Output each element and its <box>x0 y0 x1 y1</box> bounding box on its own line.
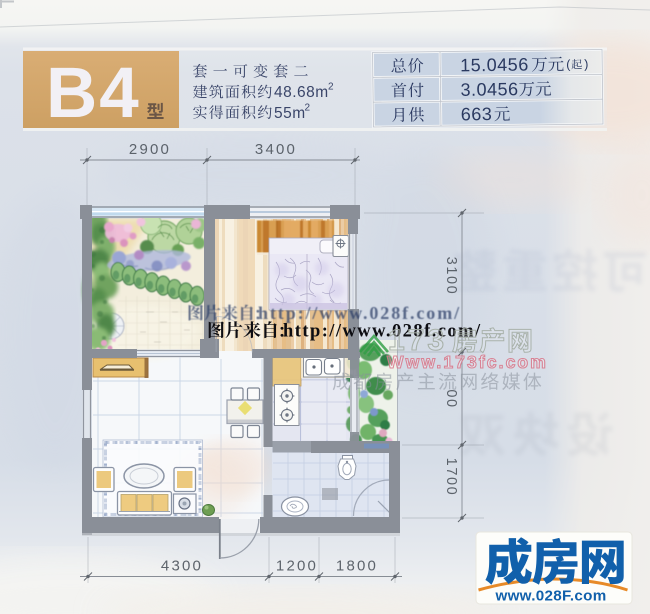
svg-text:1800: 1800 <box>336 558 378 575</box>
svg-text:48.68m: 48.68m <box>274 84 329 101</box>
svg-text:http://www.028f.com/: http://www.028f.com/ <box>258 303 461 323</box>
svg-text:Www.173fc.com: Www.173fc.com <box>387 352 548 372</box>
svg-text:663: 663 <box>461 104 493 124</box>
svg-text:1200: 1200 <box>276 558 318 575</box>
svg-text:55m: 55m <box>274 105 306 122</box>
svg-text:2: 2 <box>305 103 311 114</box>
svg-text:B4: B4 <box>46 54 141 133</box>
svg-text:2900: 2900 <box>129 141 171 158</box>
svg-text:00: 00 <box>443 389 459 408</box>
svg-text:15.0456: 15.0456 <box>460 54 529 75</box>
svg-text:3400: 3400 <box>255 141 297 158</box>
svg-text:1700: 1700 <box>443 458 459 497</box>
svg-text:4300: 4300 <box>161 558 203 575</box>
svg-text:www.028F.com: www.028F.com <box>494 588 606 605</box>
svg-text:3.0456: 3.0456 <box>460 79 518 100</box>
svg-text:2: 2 <box>328 82 334 93</box>
svg-text:): ) <box>584 57 588 71</box>
svg-text:3100: 3100 <box>443 257 459 296</box>
svg-text:http://www.028f.com/: http://www.028f.com/ <box>283 322 482 342</box>
